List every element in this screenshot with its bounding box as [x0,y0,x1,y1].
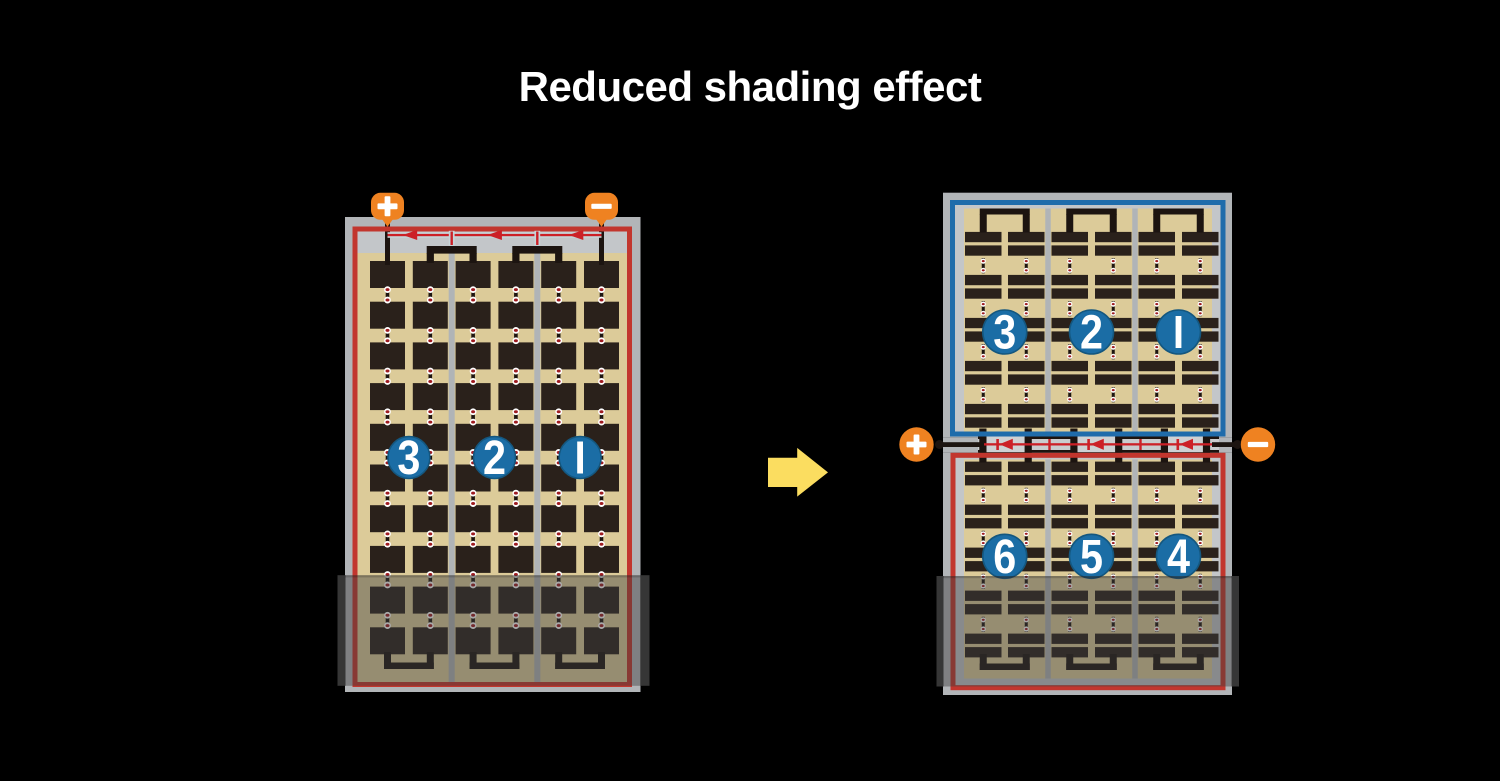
svg-text:3: 3 [993,307,1016,360]
svg-text:6: 6 [993,531,1016,584]
svg-text:3: 3 [397,432,420,485]
svg-text:4: 4 [1167,531,1190,584]
svg-text:Reduced shading effect: Reduced shading effect [519,63,982,110]
svg-text:5: 5 [1080,531,1103,584]
svg-text:2: 2 [1080,307,1103,360]
svg-text:2: 2 [483,432,506,485]
